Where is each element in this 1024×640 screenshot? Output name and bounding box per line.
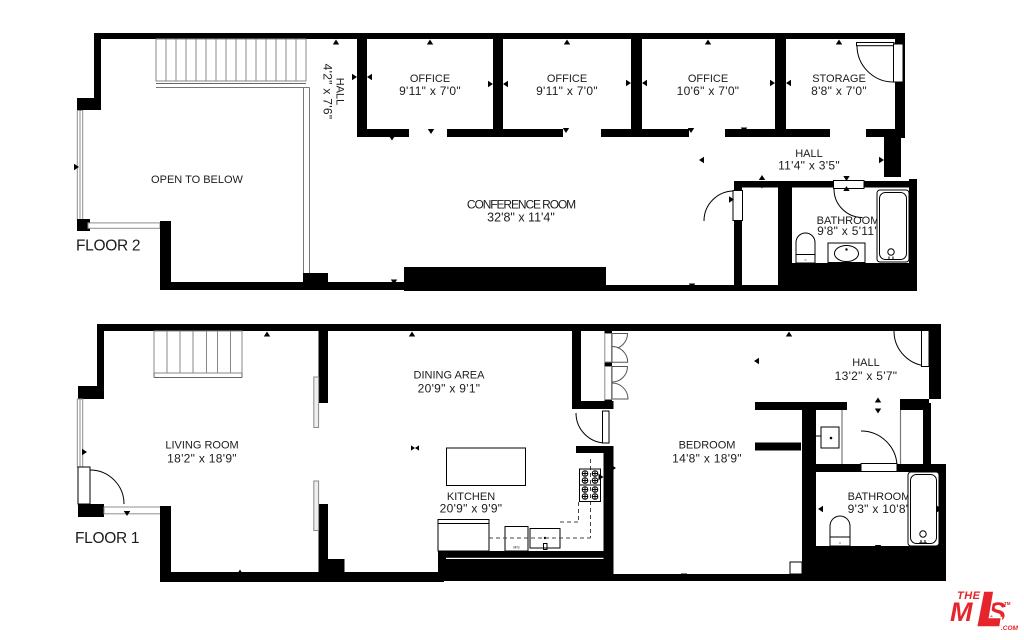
svg-text:FLOOR 1: FLOOR 1: [75, 530, 139, 547]
svg-text:8'8" x 7'0": 8'8" x 7'0": [811, 84, 867, 98]
svg-text:CONFERENCE ROOM: CONFERENCE ROOM: [467, 198, 576, 212]
svg-text:DINING AREA: DINING AREA: [414, 370, 486, 382]
svg-text:11'4" x 3'5": 11'4" x 3'5": [778, 159, 840, 173]
svg-text:M/S: M/S: [513, 546, 520, 550]
svg-text:LIVING ROOM: LIVING ROOM: [165, 440, 238, 452]
svg-text:TM: TM: [1004, 601, 1011, 606]
svg-text:13'2" x 5'7": 13'2" x 5'7": [835, 369, 898, 383]
svg-text:10'6" x 7'0": 10'6" x 7'0": [677, 84, 740, 98]
svg-text:20'9" x 9'1": 20'9" x 9'1": [418, 381, 481, 395]
svg-text:20'9" x 9'9": 20'9" x 9'9": [440, 501, 503, 515]
svg-text:4'2" x 7'6": 4'2" x 7'6": [321, 64, 335, 120]
svg-text:18'2" x 18'9": 18'2" x 18'9": [167, 452, 237, 466]
svg-text:9'11" x 7'0": 9'11" x 7'0": [399, 84, 461, 98]
svg-text:9'11" x 7'0": 9'11" x 7'0": [536, 84, 598, 98]
svg-text:FLOOR 2: FLOOR 2: [76, 238, 140, 255]
svg-text:14'8" x 18'9": 14'8" x 18'9": [672, 452, 742, 466]
svg-text:OPEN TO BELOW: OPEN TO BELOW: [151, 174, 244, 186]
svg-text:9'3" x 10'8": 9'3" x 10'8": [848, 502, 911, 516]
svg-text:.COM: .COM: [1001, 625, 1019, 632]
svg-text:HALL: HALL: [852, 357, 880, 369]
svg-text:9'8" x 5'11": 9'8" x 5'11": [817, 224, 879, 238]
svg-text:32'8" x 11'4": 32'8" x 11'4": [487, 211, 555, 225]
svg-text:M: M: [950, 597, 973, 627]
svg-text:BEDROOM: BEDROOM: [679, 440, 736, 452]
